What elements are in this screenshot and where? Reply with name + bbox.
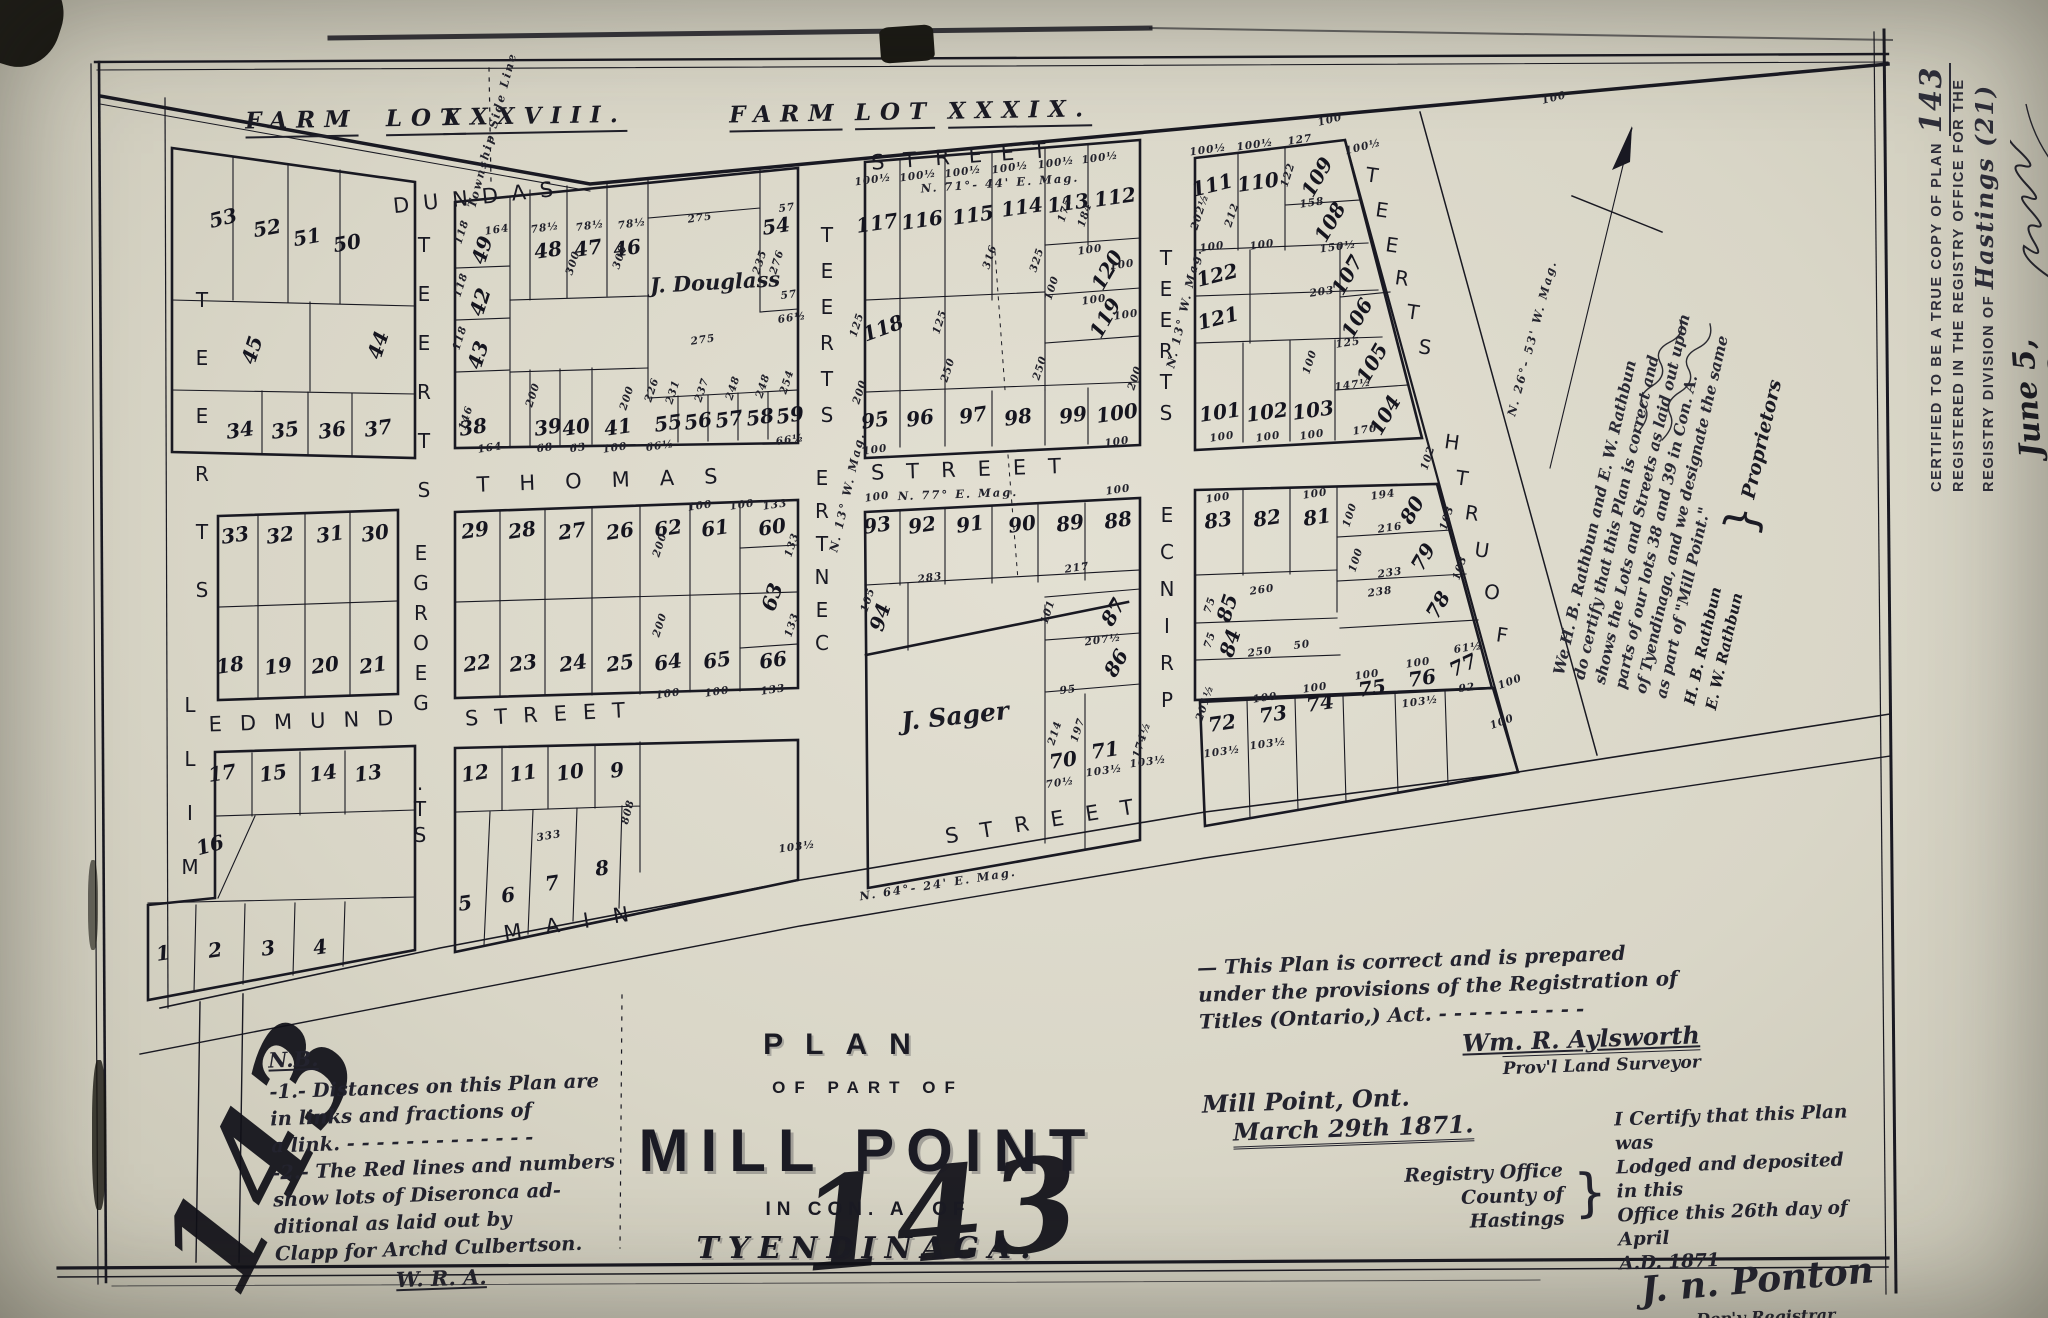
map-label: E <box>196 404 209 428</box>
lot-number: 57 <box>714 405 745 433</box>
map-label: T <box>821 367 833 391</box>
map-label: S <box>414 823 427 847</box>
lot-number: 70 <box>1048 746 1079 774</box>
lot-number: 40 <box>561 413 592 441</box>
map-label: C <box>1160 540 1174 564</box>
lot-number: 23 <box>508 649 539 677</box>
lot-number: 18 <box>215 651 246 679</box>
ink-blot-left-border <box>92 1060 106 1210</box>
lot-number: 52 <box>251 214 283 242</box>
lot-number: 28 <box>507 516 538 544</box>
lot-number: 21 <box>358 651 389 679</box>
map-label: M <box>181 855 198 879</box>
map-label: N <box>1160 577 1175 601</box>
map-label: E <box>196 346 209 370</box>
map-label: S <box>418 478 431 502</box>
lot-number: 48 <box>533 236 564 264</box>
lot-number: 22 <box>462 649 493 677</box>
registry-brace: } <box>1573 1163 1608 1224</box>
map-label: L <box>184 693 195 717</box>
lot-number: 13 <box>353 759 384 787</box>
dimension-label: 95 <box>1059 683 1077 697</box>
map-label: T <box>196 520 208 544</box>
map-label: T <box>196 288 208 312</box>
lot-number: 99 <box>1058 401 1089 429</box>
lot-number: 82 <box>1252 504 1283 532</box>
map-label: T <box>821 223 833 247</box>
lot-number: 66 <box>758 646 789 674</box>
lot-number: 55 <box>653 409 684 437</box>
map-label: FARM <box>729 100 843 133</box>
lot-number: 60 <box>757 513 788 541</box>
lot-number: 90 <box>1007 510 1038 538</box>
stamp-plan-number: 143 <box>1914 63 1951 136</box>
lot-number: 20 <box>310 651 341 679</box>
map-label: L <box>184 747 195 771</box>
map-label: S <box>821 403 834 427</box>
lot-number: 29 <box>460 516 491 544</box>
map-label: R <box>417 380 431 404</box>
map-label: XXXIX. <box>948 95 1093 129</box>
stamp-line2: REGISTERED IN THE REGISTRY OFFICE FOR TH… <box>1949 54 1970 492</box>
map-label: T <box>1160 370 1172 394</box>
map-label: R <box>1159 339 1173 363</box>
map-label: N <box>815 565 830 589</box>
lot-number: 17 <box>207 759 238 787</box>
lot-number: 98 <box>1003 403 1034 431</box>
map-label: T <box>418 233 430 257</box>
stamp-division: Hastings (21) <box>1970 84 1999 289</box>
map-label: R <box>820 331 834 355</box>
lot-number: 81 <box>1302 503 1333 531</box>
ink-blot-left-border2 <box>88 860 98 950</box>
map-label: S <box>1160 401 1173 425</box>
lot-number: 11 <box>508 759 539 787</box>
lot-number: 61 <box>700 514 731 542</box>
registry-office: Registry OfficeCounty of Hastings <box>1390 1158 1565 1236</box>
lot-number: 88 <box>1103 506 1134 534</box>
lot-number: 83 <box>1203 506 1234 534</box>
map-label: E <box>1160 277 1173 301</box>
lot-number: 95 <box>860 406 891 434</box>
map-label: E <box>418 331 431 355</box>
map-label: P <box>1161 688 1173 712</box>
map-label: T <box>816 532 828 556</box>
lot-number: 97 <box>958 401 989 429</box>
lot-number: 92 <box>907 511 938 539</box>
lot-number: 96 <box>905 404 936 432</box>
lot-number: 10 <box>555 758 586 786</box>
lot-number: 65 <box>702 646 733 674</box>
scanned-survey-plan: 5352515045443435363733323130181920211715… <box>0 0 2048 1318</box>
map-label: E <box>816 598 829 622</box>
map-label: I <box>187 801 193 825</box>
map-label: E <box>1161 503 1174 527</box>
lot-number: 59 <box>775 401 806 429</box>
lot-number: 36 <box>317 416 348 444</box>
lot-number: 25 <box>605 649 636 677</box>
stamp-signature: DEPUTY REGISTRAR <box>2010 72 2048 302</box>
map-label: R <box>414 601 428 625</box>
lot-number: 50 <box>331 229 363 257</box>
map-label: G <box>413 691 429 715</box>
lot-number: 41 <box>603 413 634 441</box>
lot-number: 12 <box>460 759 491 787</box>
stamp-date: June 5, 1972 DATE <box>2010 302 2048 492</box>
lot-number: 24 <box>558 649 589 677</box>
nb-lines: -1.- Distances on this Plan arein links … <box>269 1064 705 1268</box>
stamp-date-value: June 5, 1972 <box>2003 300 2048 494</box>
map-label: E <box>415 661 428 685</box>
map-label: R <box>1160 651 1174 675</box>
map-label: O <box>1483 579 1502 605</box>
map-label: FARM <box>245 106 359 139</box>
map-label: T <box>414 797 426 821</box>
lot-number: 19 <box>263 652 294 680</box>
map-label: I <box>1164 614 1170 638</box>
lot-number: 30 <box>360 519 391 547</box>
lot-number: 58 <box>745 403 776 431</box>
map-label: E <box>415 541 428 565</box>
lot-number: 89 <box>1055 509 1086 537</box>
proprietors-brace: } <box>1715 501 1771 540</box>
lot-number: 56 <box>683 407 714 435</box>
lot-number: 91 <box>955 510 986 538</box>
registry-lines: I Certify that this Plan wasLodged and d… <box>1614 1100 1874 1277</box>
dimension-label: 63 <box>569 441 587 455</box>
lot-number: 15 <box>258 759 289 787</box>
lot-number: 54 <box>761 212 792 240</box>
certified-copy-stamp: CERTIFIED TO BE A TRUE COPY OF PLAN 143 … <box>1914 54 2048 492</box>
deputy-registrar-signature <box>2010 82 2048 292</box>
dimension-label: 50 <box>1293 638 1311 652</box>
stamp-line3-text: REGISTRY DIVISION OF <box>1981 295 1997 492</box>
lot-number: 26 <box>605 517 636 545</box>
map-label: LOT <box>855 98 936 130</box>
dimension-label: 57 <box>778 201 796 215</box>
lot-number: 39 <box>533 413 564 441</box>
map-label: . <box>417 771 423 795</box>
map-label: E <box>418 282 431 306</box>
lot-number: 71 <box>1090 736 1121 764</box>
dimension-label: 68 <box>536 441 554 455</box>
map-label: T <box>1160 246 1172 270</box>
lot-number: 93 <box>862 511 893 539</box>
lot-number: 27 <box>557 517 588 545</box>
stamp-line3: REGISTRY DIVISION OF Hastings (21) <box>1970 54 2000 492</box>
registry-certificate: Registry OfficeCounty of Hastings } I Ce… <box>1388 1100 1875 1318</box>
lot-number: 64 <box>653 648 684 676</box>
lot-number: 72 <box>1207 709 1238 737</box>
lot-number: 31 <box>315 520 346 548</box>
map-label: E <box>821 259 834 283</box>
stamp-line1: CERTIFIED TO BE A TRUE COPY OF PLAN 143 <box>1914 54 1949 492</box>
map-label: C <box>815 631 829 655</box>
map-label: O <box>413 631 429 655</box>
map-label: G <box>413 571 429 595</box>
map-label: E <box>1160 308 1173 332</box>
lot-number: 14 <box>308 759 339 787</box>
lot-number: 37 <box>363 414 394 442</box>
lot-number: 33 <box>220 521 251 549</box>
nb-note: N.B. -1.- Distances on this Plan arein l… <box>268 1033 706 1297</box>
dimension-label: 57 <box>780 288 798 302</box>
dimension-label: 92 <box>1458 681 1476 695</box>
lot-number: 34 <box>225 416 256 444</box>
map-label: S <box>196 578 209 602</box>
map-label: R <box>815 499 829 523</box>
map-label: T <box>418 429 430 453</box>
map-label: XXXVIII. <box>443 101 627 135</box>
lot-number: 32 <box>265 521 296 549</box>
lot-number: 51 <box>291 223 323 251</box>
map-label: E <box>821 295 834 319</box>
stamp-line1-text: CERTIFIED TO BE A TRUE COPY OF PLAN <box>1929 142 1945 492</box>
binder-clip <box>879 24 935 64</box>
lot-number: 35 <box>270 416 301 444</box>
map-label: E <box>816 466 829 490</box>
surveyor-lines: — This Plan is correct and is preparedun… <box>1197 937 1700 1035</box>
map-label: R <box>195 462 209 486</box>
